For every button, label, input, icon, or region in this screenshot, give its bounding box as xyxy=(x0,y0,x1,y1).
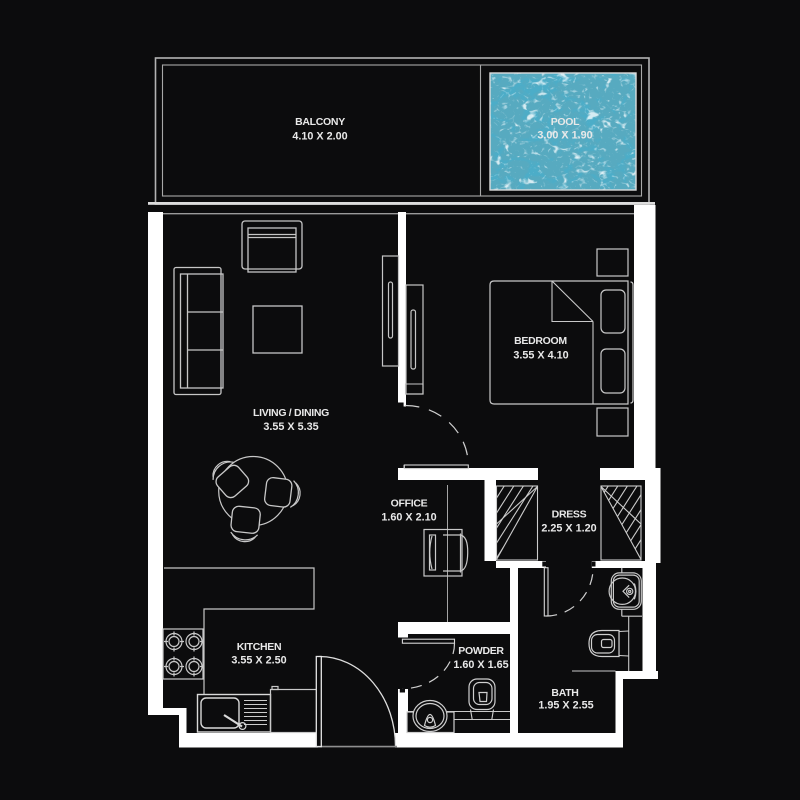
svg-text:3.55 X 5.35: 3.55 X 5.35 xyxy=(263,421,318,433)
svg-text:1.95 X 2.55: 1.95 X 2.55 xyxy=(538,700,593,712)
svg-text:1.60 X 1.65: 1.60 X 1.65 xyxy=(453,659,508,671)
svg-text:4.10 X 2.00: 4.10 X 2.00 xyxy=(292,131,347,143)
svg-text:BEDROOM: BEDROOM xyxy=(514,335,567,347)
svg-text:LIVING / DINING: LIVING / DINING xyxy=(253,407,329,419)
svg-text:1.60 X 2.10: 1.60 X 2.10 xyxy=(381,512,436,524)
svg-text:BALCONY: BALCONY xyxy=(295,116,345,128)
svg-text:KITCHEN: KITCHEN xyxy=(237,641,282,653)
svg-text:POOL: POOL xyxy=(551,116,580,128)
svg-text:2.25 X 1.20: 2.25 X 1.20 xyxy=(541,523,596,535)
svg-text:BATH: BATH xyxy=(551,687,578,699)
svg-text:POWDER: POWDER xyxy=(458,645,504,657)
svg-text:OFFICE: OFFICE xyxy=(391,498,428,510)
svg-text:3.55 X 2.50: 3.55 X 2.50 xyxy=(231,655,286,667)
svg-text:3.00 X 1.90: 3.00 X 1.90 xyxy=(537,130,592,142)
svg-text:3.55 X 4.10: 3.55 X 4.10 xyxy=(513,350,568,362)
svg-text:DRESS: DRESS xyxy=(552,509,587,521)
